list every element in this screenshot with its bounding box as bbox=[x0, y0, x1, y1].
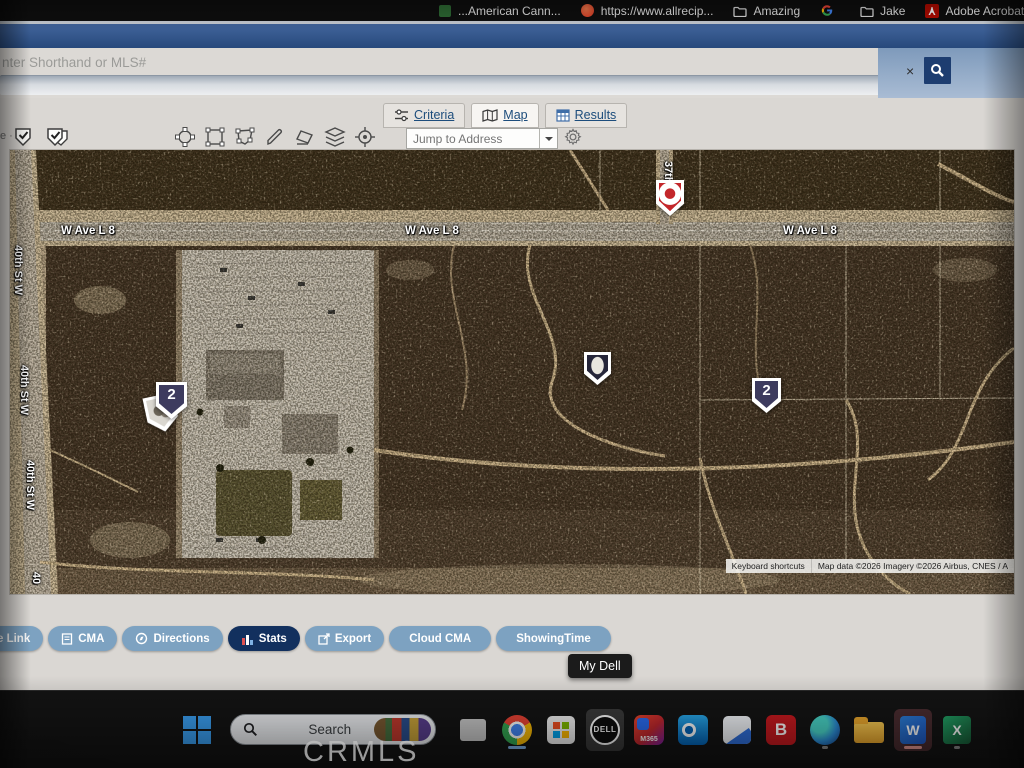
browser-bookmarks-bar: ...American Cann... https://www.allrecip… bbox=[0, 0, 1024, 21]
draw-polygon-tool-icon[interactable] bbox=[234, 126, 256, 148]
bar-chart-icon bbox=[241, 633, 254, 645]
street-label-40th-st-w: 40th St W bbox=[12, 245, 24, 295]
crmls-watermark: CRMLS bbox=[303, 736, 420, 768]
button-label: Stats bbox=[259, 633, 287, 645]
bookmark-google[interactable] bbox=[820, 4, 840, 18]
cma-button[interactable]: CMA bbox=[48, 626, 117, 651]
listing-action-bar: e Link CMA Directions Stats Export Cloud… bbox=[0, 626, 611, 651]
chevron-down-icon[interactable] bbox=[539, 129, 557, 148]
open-app-indicator bbox=[954, 746, 960, 749]
shield-check-multi-icon[interactable] bbox=[46, 127, 72, 147]
taskbar-bing-button[interactable]: B bbox=[762, 709, 800, 751]
bookmark-label: ...American Cann... bbox=[458, 4, 561, 18]
map-settings-gear-icon[interactable] bbox=[564, 128, 582, 146]
taskbar-word-button[interactable]: W bbox=[894, 709, 932, 751]
search-icon bbox=[243, 722, 300, 737]
bookmark-label: Amazing bbox=[753, 4, 800, 18]
taskbar-file-explorer-button[interactable] bbox=[850, 709, 888, 751]
edge-icon bbox=[810, 715, 840, 745]
compass-icon bbox=[135, 632, 148, 645]
task-view-icon bbox=[460, 719, 486, 741]
chrome-icon bbox=[502, 715, 532, 745]
map-toolbar: e · bbox=[0, 124, 1024, 152]
outlook-icon bbox=[678, 715, 708, 745]
map-marker-cluster-count[interactable]: 2 bbox=[156, 382, 187, 419]
showingtime-button[interactable]: ShowingTime bbox=[496, 626, 611, 651]
dell-tooltip: My Dell bbox=[568, 654, 632, 678]
satellite-imagery bbox=[10, 150, 1014, 594]
map-marker-cluster-right[interactable]: 2 bbox=[752, 378, 781, 413]
map-marker-cluster-left[interactable]: 2 bbox=[146, 382, 192, 436]
search-button[interactable] bbox=[924, 57, 951, 84]
button-label: Cloud CMA bbox=[409, 633, 471, 645]
allrecipes-icon bbox=[581, 4, 595, 18]
dell-icon: DELL bbox=[590, 715, 620, 745]
street-label-40th-st-w: 40th St W bbox=[18, 365, 30, 415]
tab-label: Results bbox=[575, 108, 617, 122]
folder-icon bbox=[733, 4, 747, 18]
map-marker-single-listing[interactable] bbox=[584, 352, 611, 385]
taskbar-search-label: Search bbox=[308, 722, 365, 737]
criteria-sliders-icon bbox=[394, 109, 409, 122]
map-icon bbox=[482, 109, 498, 122]
shield-check-icon[interactable] bbox=[14, 127, 36, 147]
taskbar-store-button[interactable] bbox=[542, 709, 580, 751]
taskbar-dell-button[interactable]: DELL bbox=[586, 709, 624, 751]
keyboard-shortcuts-link[interactable]: Keyboard shortcuts bbox=[726, 559, 811, 573]
street-label-w-ave-l8: W Ave L 8 bbox=[61, 225, 115, 237]
export-icon bbox=[318, 633, 330, 645]
tab-label: Criteria bbox=[414, 108, 454, 122]
jump-to-address-combobox[interactable] bbox=[406, 128, 558, 149]
leaf-icon bbox=[438, 4, 452, 18]
active-app-indicator bbox=[508, 746, 526, 749]
bookmark-acrobat[interactable]: Adobe Acrobat Ho bbox=[925, 4, 1024, 18]
bookmark-allrecipes[interactable]: https://www.allrecip... bbox=[581, 4, 714, 18]
microsoft-store-icon bbox=[547, 716, 575, 744]
tab-label: Map bbox=[503, 108, 527, 122]
directions-button[interactable]: Directions bbox=[122, 626, 222, 651]
map-data-attribution: Map data ©2026 Imagery ©2026 Airbus, CNE… bbox=[811, 559, 1014, 573]
button-label: ShowingTime bbox=[516, 633, 591, 645]
open-app-indicator bbox=[822, 746, 828, 749]
cloud-cma-button[interactable]: Cloud CMA bbox=[389, 626, 491, 651]
taskbar-task-view-button[interactable] bbox=[454, 709, 492, 751]
file-explorer-folder-icon bbox=[854, 722, 884, 743]
folder-icon bbox=[860, 4, 874, 18]
monitor-photo: ...American Cann... https://www.allrecip… bbox=[0, 0, 1024, 768]
clear-search-button[interactable]: × bbox=[906, 64, 914, 78]
bookmark-label: Jake bbox=[880, 4, 905, 18]
active-app-indicator bbox=[904, 746, 922, 749]
windows-logo-icon bbox=[183, 716, 211, 744]
cluster-count: 2 bbox=[752, 382, 781, 399]
mls-search-header: nter Shorthand or MLS# × bbox=[0, 48, 1024, 98]
draw-circle-tool-icon[interactable] bbox=[174, 126, 196, 148]
button-label: e Link bbox=[0, 633, 30, 645]
layers-tool-icon[interactable] bbox=[324, 126, 346, 148]
mls-header-band bbox=[0, 21, 1024, 48]
taskbar-chrome-button[interactable] bbox=[498, 709, 536, 751]
bookmark-folder-jake[interactable]: Jake bbox=[860, 4, 905, 18]
street-label-40th-partial: 40 bbox=[30, 572, 42, 584]
eraser-tool-icon[interactable] bbox=[294, 126, 316, 148]
search-icon bbox=[930, 63, 945, 78]
jump-to-address-input[interactable] bbox=[407, 132, 539, 146]
draw-rectangle-tool-icon[interactable] bbox=[204, 126, 226, 148]
center-target-tool-icon[interactable] bbox=[354, 126, 376, 148]
cluster-count: 2 bbox=[156, 386, 187, 403]
bookmark-folder-amazing[interactable]: Amazing bbox=[733, 4, 800, 18]
street-label-w-ave-l8: W Ave L 8 bbox=[405, 225, 459, 237]
draw-freehand-pencil-icon[interactable] bbox=[264, 126, 286, 148]
word-icon: W bbox=[900, 716, 926, 744]
taskbar-excel-button[interactable]: X bbox=[938, 709, 976, 751]
bing-b-icon: B bbox=[766, 715, 796, 745]
link-button[interactable]: e Link bbox=[0, 626, 43, 651]
button-label: Export bbox=[335, 633, 371, 645]
street-label-w-ave-l8: W Ave L 8 bbox=[783, 225, 837, 237]
bookmark-label: https://www.allrecip... bbox=[601, 4, 714, 18]
taskbar-outlook-button[interactable] bbox=[674, 709, 712, 751]
cma-doc-icon bbox=[61, 633, 73, 645]
satellite-map[interactable]: W Ave L 8 W Ave L 8 W Ave L 8 40th St W … bbox=[10, 150, 1014, 594]
button-label: CMA bbox=[78, 633, 104, 645]
mls-search-input[interactable] bbox=[0, 75, 903, 95]
bookmark-american-cann[interactable]: ...American Cann... bbox=[438, 4, 561, 18]
windows-taskbar: Search DELL M365 B bbox=[0, 690, 1024, 768]
snipping-tool-icon bbox=[723, 716, 751, 744]
bookmark-label: Adobe Acrobat Ho bbox=[945, 4, 1024, 18]
google-g-icon bbox=[820, 4, 834, 18]
taskbar-m365-button[interactable]: M365 bbox=[630, 709, 668, 751]
microsoft-365-icon: M365 bbox=[634, 715, 664, 745]
taskbar-snipping-tool-button[interactable] bbox=[718, 709, 756, 751]
windows-start-button[interactable] bbox=[178, 709, 216, 751]
clipped-toolbar-text: e · bbox=[0, 130, 13, 142]
search-button-panel: × bbox=[878, 48, 1024, 98]
button-label: Directions bbox=[153, 633, 209, 645]
map-attribution: Keyboard shortcuts Map data ©2026 Imager… bbox=[726, 559, 1014, 573]
excel-icon: X bbox=[943, 716, 971, 744]
export-button[interactable]: Export bbox=[305, 626, 384, 651]
stats-button[interactable]: Stats bbox=[228, 626, 300, 651]
acrobat-icon bbox=[925, 4, 939, 18]
results-grid-icon bbox=[556, 109, 570, 122]
mls-search-placeholder: nter Shorthand or MLS# bbox=[2, 55, 146, 70]
map-marker-red-listing[interactable] bbox=[656, 180, 684, 216]
street-label-40th-st-w: 40th St W bbox=[24, 460, 36, 510]
taskbar-edge-button[interactable] bbox=[806, 709, 844, 751]
